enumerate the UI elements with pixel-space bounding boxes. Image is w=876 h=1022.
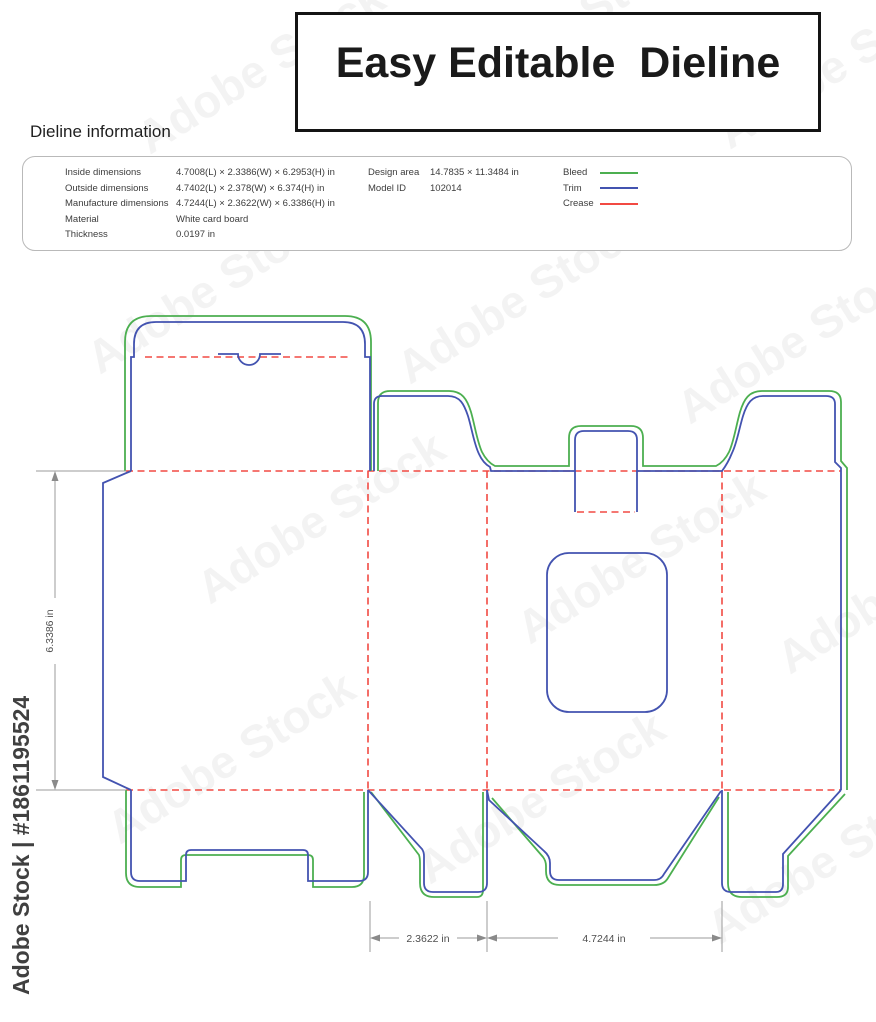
bleed-top-edge-outline (378, 391, 847, 790)
bleed-bottom-closure-flap (126, 790, 364, 887)
bleed-bottom-front-flap (492, 797, 719, 885)
bleed-tuck-lid-outline (125, 316, 371, 471)
side-width-dimension-label: 2.3622 in (406, 933, 449, 945)
trim-top-edge-outline (374, 396, 841, 790)
bleed-bottom-dust-flap-left (371, 792, 483, 897)
trim-hang-tab-slits (575, 471, 637, 512)
trim-bottom-closure-flap (131, 790, 368, 881)
height-dimension-label: 6.3386 in (44, 609, 56, 652)
trim-bottom-dust-flap-right (722, 790, 841, 892)
trim-bottom-front-flap (487, 790, 721, 880)
arrow-right-icon (712, 935, 722, 942)
trim-glue-flap (103, 471, 131, 790)
arrow-left-icon (370, 935, 380, 942)
dieline-drawing: 6.3386 in 2.3622 in 4.7244 in (0, 0, 876, 1000)
arrow-right-icon (477, 935, 487, 942)
arrow-up-icon (52, 471, 59, 481)
trim-bottom-dust-flap-left (368, 790, 487, 892)
page: { "title": { "text": "Easy Editable Diel… (0, 0, 876, 1000)
trim-window-cutout (547, 553, 667, 712)
arrow-left-icon (487, 935, 497, 942)
trim-tuck-lid-outline (131, 322, 370, 471)
trim-thumb-notch-slit (218, 354, 281, 365)
bleed-bottom-dust-flap-right (728, 792, 845, 897)
front-width-dimension-label: 4.7244 in (582, 933, 625, 945)
arrow-down-icon (52, 780, 59, 790)
